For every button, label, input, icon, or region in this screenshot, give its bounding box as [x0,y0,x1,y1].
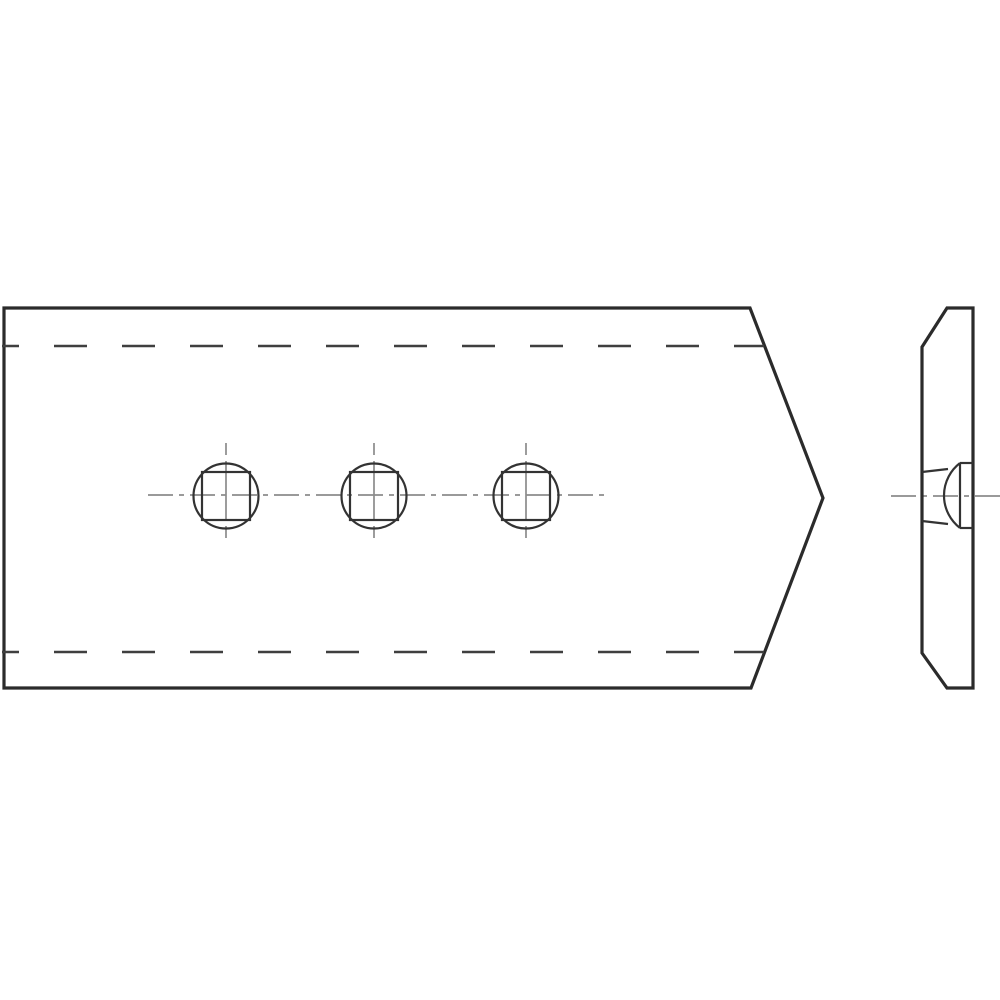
side-view-outline [922,308,973,688]
countersink-bottom-line [922,521,948,524]
technical-drawing [0,0,1000,1000]
countersink-top-line [922,469,948,472]
front-view-outline [4,308,823,688]
drawing-page [0,0,1000,1000]
